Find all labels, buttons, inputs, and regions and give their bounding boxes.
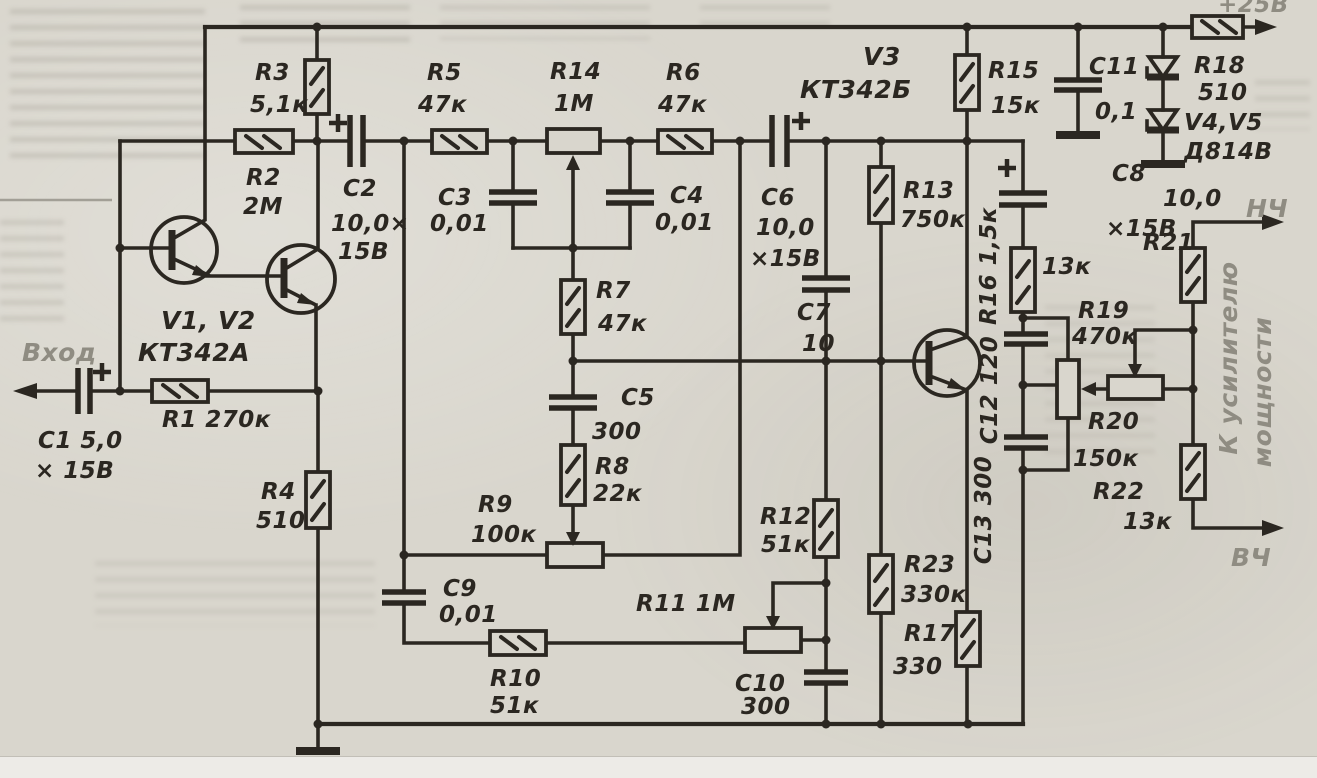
- v3-type: КТ342Б: [800, 75, 912, 104]
- hf-output-arrow: [1262, 520, 1284, 536]
- v4v5-name: V4,V5: [1184, 110, 1263, 136]
- r4-name: R4: [261, 479, 296, 505]
- c13-label: С13 300: [971, 456, 997, 564]
- r21-value: 13к: [1042, 254, 1092, 280]
- capacitor-c11: [1054, 80, 1102, 90]
- resistor-r17: [956, 612, 980, 666]
- r9-value: 100к: [471, 522, 538, 548]
- r5-name: R5: [427, 60, 462, 86]
- r14-value: 1М: [554, 91, 594, 117]
- resistor-r3: [305, 60, 329, 114]
- resistor-r7: [561, 280, 585, 334]
- r16-label: R16 1,5к: [976, 206, 1002, 325]
- r22-name: R22: [1093, 479, 1144, 505]
- resistor-r4: [306, 472, 330, 528]
- c2-name: C2: [343, 176, 377, 202]
- c1-label2: × 15В: [35, 458, 114, 484]
- resistor-r13: [869, 167, 893, 223]
- resistor-r1: [152, 380, 208, 402]
- r3-value: 5,1к: [250, 92, 309, 118]
- r20-name: R20: [1088, 409, 1139, 435]
- capacitor-c10: [804, 672, 848, 683]
- r7-name: R7: [596, 278, 631, 304]
- capacitor-c12: [1004, 334, 1048, 344]
- c3-value: 0,01: [430, 211, 489, 237]
- transistor-v1: [151, 217, 217, 283]
- transistor-v3: [914, 330, 980, 396]
- v3-name: V3: [863, 42, 901, 71]
- supply-label: +25В: [1218, 0, 1289, 18]
- c5-value: 300: [592, 419, 642, 445]
- capacitor-c7: [802, 278, 850, 290]
- c9-value: 0,01: [439, 602, 498, 628]
- input-arrow: [13, 383, 37, 399]
- resistor-r21: [1181, 248, 1205, 302]
- dest-label-line2: мощности: [1248, 317, 1277, 468]
- c11-value: 0,1: [1095, 99, 1137, 125]
- capacitor-c4: [606, 192, 654, 203]
- r22-value: 13к: [1123, 509, 1173, 535]
- r17-value: 330: [893, 654, 943, 680]
- r13-value: 750к: [900, 207, 967, 233]
- c2-rating: 15В: [338, 239, 389, 265]
- c11-name: C11: [1089, 54, 1139, 80]
- input-label: Вход: [22, 338, 97, 367]
- c8-value: 10,0: [1163, 186, 1222, 212]
- r10-name: R10: [490, 666, 541, 692]
- lf-label: НЧ: [1246, 194, 1288, 223]
- resistor-r2: [235, 130, 293, 153]
- resistor-r15: [955, 55, 979, 110]
- page-edge-band: [0, 756, 1317, 778]
- c6-name: C6: [761, 185, 795, 211]
- r12-value: 51к: [761, 532, 811, 558]
- c2-value: 10,0×: [331, 211, 410, 237]
- potentiometer-r11: [745, 616, 801, 652]
- r9-name: R9: [478, 492, 513, 518]
- r10-value: 51к: [490, 693, 540, 719]
- c4-name: C4: [670, 183, 704, 209]
- resistor-r8: [561, 445, 585, 505]
- potentiometer-r9: [547, 532, 603, 567]
- v4v5-type: Д814В: [1183, 139, 1273, 165]
- capacitor-c9: [382, 592, 426, 603]
- r6-value: 47к: [657, 92, 708, 118]
- c3-name: C3: [438, 185, 472, 211]
- r8-name: R8: [595, 454, 630, 480]
- zener-diode-v4: [1147, 57, 1179, 77]
- c8-name: C8: [1112, 161, 1146, 187]
- c6-rating: ×15В: [750, 246, 821, 272]
- r18-value: 510: [1198, 80, 1248, 106]
- r1-label: R1 270к: [162, 407, 272, 433]
- capacitor-c1: [78, 363, 111, 414]
- capacitor-c5: [549, 397, 597, 408]
- r21-name: R21: [1143, 230, 1194, 256]
- r13-name: R13: [903, 178, 954, 204]
- r15-value: 15к: [991, 93, 1041, 119]
- r12-name: R12: [760, 504, 811, 530]
- resistor-r12: [814, 500, 838, 557]
- resistor-r18: [1192, 16, 1243, 38]
- resistor-r5: [432, 130, 487, 153]
- r5-value: 47к: [417, 92, 468, 118]
- supply-arrow: [1255, 19, 1277, 35]
- resistor-r6: [658, 130, 712, 153]
- r2-name: R2: [246, 165, 281, 191]
- r4-value: 510: [256, 508, 306, 534]
- c1-label1: C1 5,0: [38, 428, 123, 454]
- potentiometer-r14: [547, 129, 600, 170]
- resistor-r10: [490, 631, 546, 655]
- c5-name: C5: [621, 385, 655, 411]
- hf-label: ВЧ: [1231, 543, 1271, 572]
- c9-name: C9: [443, 576, 477, 602]
- c4-value: 0,01: [655, 210, 714, 236]
- c7-value: 10: [802, 331, 835, 357]
- r19-name: R19: [1078, 298, 1129, 324]
- resistor-r22: [1181, 445, 1205, 499]
- r2-value: 2М: [243, 194, 283, 220]
- zener-diode-v5: [1147, 110, 1179, 130]
- r20-value: 150к: [1073, 446, 1140, 472]
- c12-label: С12 120: [977, 336, 1003, 444]
- resistor-r23: [869, 555, 893, 613]
- r17-name: R17: [904, 621, 955, 647]
- c10-value: 300: [741, 694, 791, 720]
- r23-value: 330к: [901, 582, 968, 608]
- r23-name: R23: [904, 552, 955, 578]
- c6-value: 10,0: [756, 215, 815, 241]
- r15-name: R15: [988, 58, 1039, 84]
- r11-label: R11 1М: [636, 591, 736, 617]
- v1v2-type: КТ342А: [138, 338, 250, 367]
- transistor-v2: [267, 245, 335, 313]
- c7-name: C7: [797, 300, 831, 326]
- capacitor-c13: [1004, 437, 1048, 448]
- r14-name: R14: [550, 59, 601, 85]
- v1v2-name: V1, V2: [161, 306, 256, 335]
- r7-value: 47к: [597, 311, 648, 337]
- potentiometer-r20: [1108, 364, 1163, 399]
- capacitor-c3: [489, 192, 537, 203]
- r6-name: R6: [666, 60, 701, 86]
- dest-label-line1: К усилителю: [1214, 261, 1243, 454]
- resistor-r16: [1011, 248, 1035, 312]
- r19-value: 470к: [1071, 324, 1139, 350]
- r3-name: R3: [255, 60, 290, 86]
- r18-name: R18: [1194, 53, 1245, 79]
- r8-value: 22к: [593, 481, 643, 507]
- schematic-canvas: R3 5,1к R2 2М C2 10,0× 15В R5 47к R14 1М…: [0, 0, 1317, 777]
